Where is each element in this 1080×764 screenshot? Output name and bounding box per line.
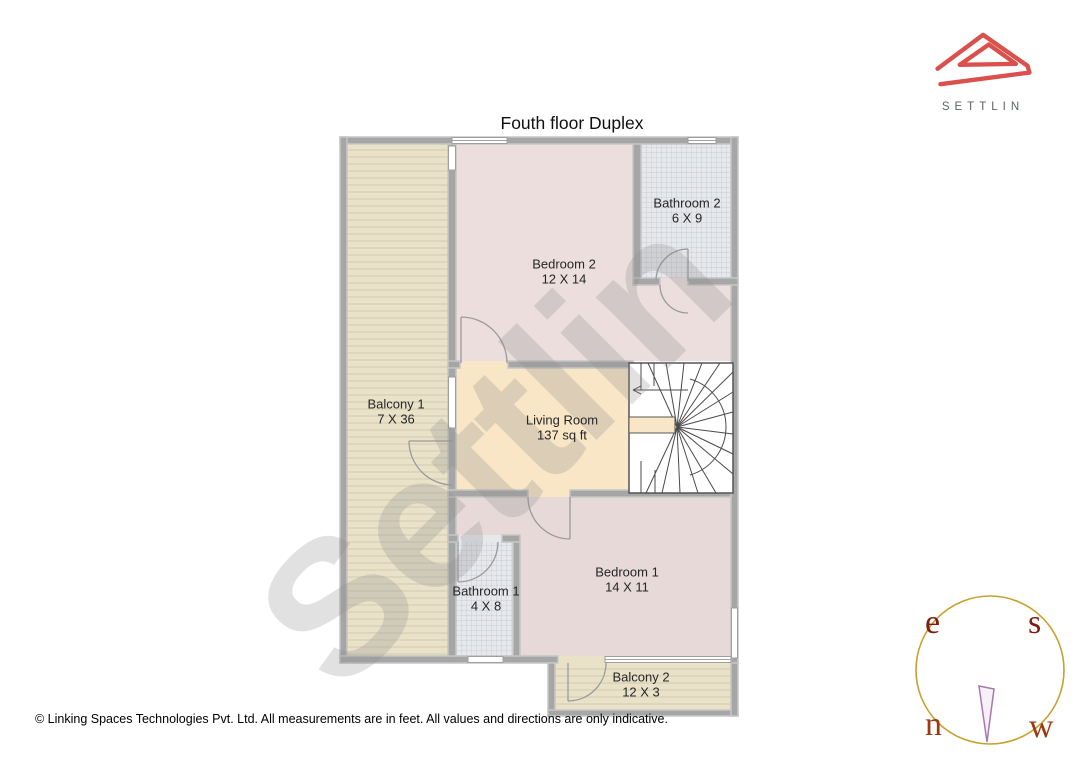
compass-letter-w: w — [1029, 708, 1054, 745]
label-balcony-2: Balcony 2 12 X 3 — [612, 671, 669, 700]
label-balcony-1: Balcony 1 7 X 36 — [367, 398, 424, 427]
label-bathroom-2: Bathroom 2 6 X 9 — [653, 197, 720, 226]
compass-letter-e: e — [925, 604, 940, 641]
room-name: Living Room — [526, 414, 598, 429]
room-name: Bathroom 2 — [653, 197, 720, 212]
room-dims: 4 X 8 — [452, 599, 519, 614]
compass-letter-n: n — [925, 706, 942, 743]
room-dims: 7 X 36 — [367, 412, 424, 427]
settlin-logo: SETTLIN — [926, 30, 1040, 113]
room-dims: 137 sq ft — [526, 428, 598, 443]
room-name: Bathroom 1 — [452, 585, 519, 600]
staircase-icon — [629, 363, 733, 493]
compass-letter-s: s — [1028, 604, 1041, 641]
room-dims: 6 X 9 — [653, 211, 720, 226]
label-living-room: Living Room 137 sq ft — [526, 414, 598, 443]
label-bathroom-1: Bathroom 1 4 X 8 — [452, 585, 519, 614]
compass-needle-icon — [979, 686, 994, 742]
room-dims: 12 X 14 — [532, 272, 596, 287]
compass-icon: e s n w — [905, 585, 1075, 760]
copyright-notice: © Linking Spaces Technologies Pvt. Ltd. … — [35, 712, 668, 726]
room-name: Bedroom 1 — [595, 566, 659, 581]
room-name: Bedroom 2 — [532, 258, 596, 273]
room-dims: 14 X 11 — [595, 580, 659, 595]
room-name: Balcony 2 — [612, 671, 669, 686]
settlin-logo-text: SETTLIN — [926, 101, 1040, 113]
room-dims: 12 X 3 — [612, 685, 669, 700]
page-title: Fouth floor Duplex — [501, 113, 644, 134]
label-bedroom-2: Bedroom 2 12 X 14 — [532, 258, 596, 287]
room-name: Balcony 1 — [367, 398, 424, 413]
settlin-roof-icon — [931, 30, 1035, 90]
label-bedroom-1: Bedroom 1 14 X 11 — [595, 566, 659, 595]
